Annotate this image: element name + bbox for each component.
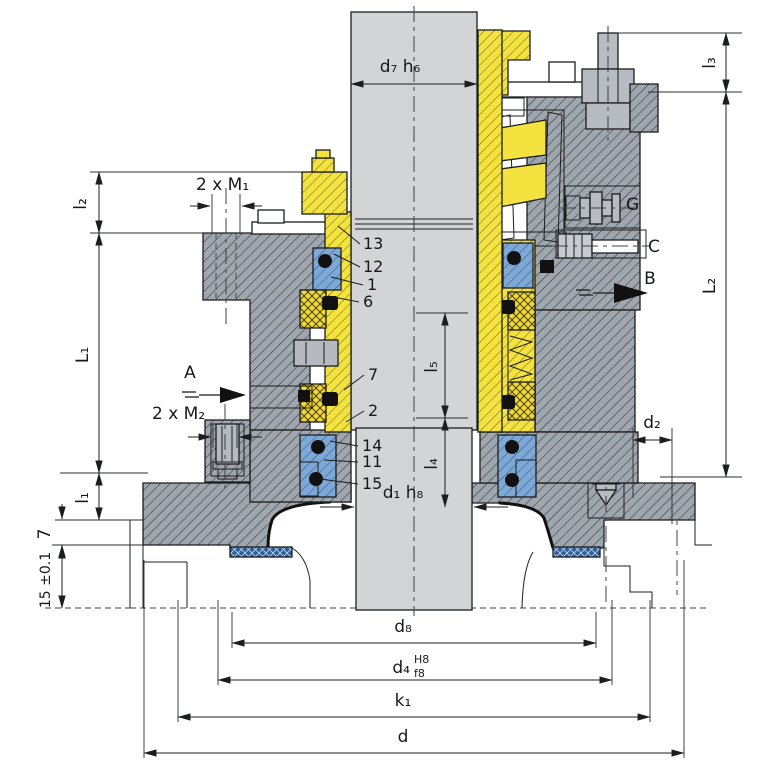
dim-d1h8-label: d₁ h₈ — [383, 483, 424, 503]
callout-2: 2 — [368, 401, 378, 420]
assembly-drawing: d₇ h₆ l₃ L₂ l₂ L₁ l₁ — [0, 0, 768, 768]
port-g-label: G — [626, 195, 639, 215]
port-b-label: B — [644, 269, 656, 289]
callout-12: 12 — [363, 257, 383, 276]
callout-15: 15 — [362, 474, 382, 493]
dim-d8: d₈ — [232, 617, 596, 643]
dim-d4-fit-upper: H8 — [414, 653, 429, 666]
callout-6: 6 — [363, 292, 373, 311]
dim-d7h6-label: d₇ h₆ — [380, 57, 421, 77]
dim-l5-label: l₅ — [422, 361, 442, 373]
port-a: A — [182, 363, 246, 403]
dim-l4-label: l₄ — [422, 458, 442, 470]
flow-arrow-a — [220, 387, 246, 403]
dim-15: 15 ±0.1 — [38, 545, 130, 608]
seal-lower-left — [300, 435, 336, 497]
dim-l3: l₃ — [618, 33, 742, 92]
dim-d4-fit-lower: f8 — [414, 667, 425, 680]
shaft — [351, 6, 477, 616]
m2-bolt — [205, 404, 250, 488]
seal-ring-upper-left — [313, 248, 341, 290]
dim-d4: d₄ H8 f8 — [218, 653, 612, 680]
dim-k1: k₁ — [178, 691, 650, 717]
dim-L1-label: L₁ — [73, 347, 93, 363]
dim-l2-label: l₂ — [71, 198, 91, 210]
dim-15-label: 15 ±0.1 — [38, 552, 54, 608]
dim-l3-label: l₃ — [700, 57, 720, 69]
stud-and-nuts — [582, 26, 634, 142]
right-bearing-assembly — [478, 26, 658, 497]
dim-L1: L₁ — [60, 233, 148, 473]
port-c-label: C — [648, 237, 660, 257]
housing-lower — [535, 310, 635, 432]
technical-drawing-page: d₇ h₆ l₃ L₂ l₂ L₁ l₁ — [0, 0, 768, 768]
dim-l1: l₁ — [55, 473, 143, 520]
seal-lower-right — [498, 435, 536, 497]
gasket-right — [553, 547, 600, 557]
dim-d4-label: d₄ — [392, 658, 410, 678]
cover-boss — [258, 210, 284, 223]
callout-11: 11 — [362, 452, 382, 471]
dim-d2-label: d₂ — [643, 413, 661, 433]
port-a-label: A — [184, 363, 196, 383]
dim-d8-label: d₈ — [394, 617, 412, 637]
dim-m1-label: 2 x M₁ — [196, 175, 249, 195]
dim-l1-label: l₁ — [73, 492, 93, 504]
dim-L2-label: L₂ — [700, 278, 720, 294]
dim-7-label: 7 — [35, 529, 55, 540]
gasket-left — [230, 547, 292, 557]
dim-k1-label: k₁ — [395, 691, 412, 711]
seal-cartridge-left — [294, 290, 338, 422]
cover-gasket-strip — [252, 222, 337, 234]
shaft-sleeve-right — [478, 30, 502, 432]
callout-7: 7 — [368, 365, 378, 384]
callout-13: 13 — [363, 234, 383, 253]
dim-L2: L₂ — [660, 92, 742, 477]
left-seal-assembly — [203, 150, 351, 502]
dim-m2-label: 2 x M₂ — [152, 404, 205, 424]
dim-d-label: d — [398, 727, 409, 747]
dim-d: d — [144, 727, 684, 753]
